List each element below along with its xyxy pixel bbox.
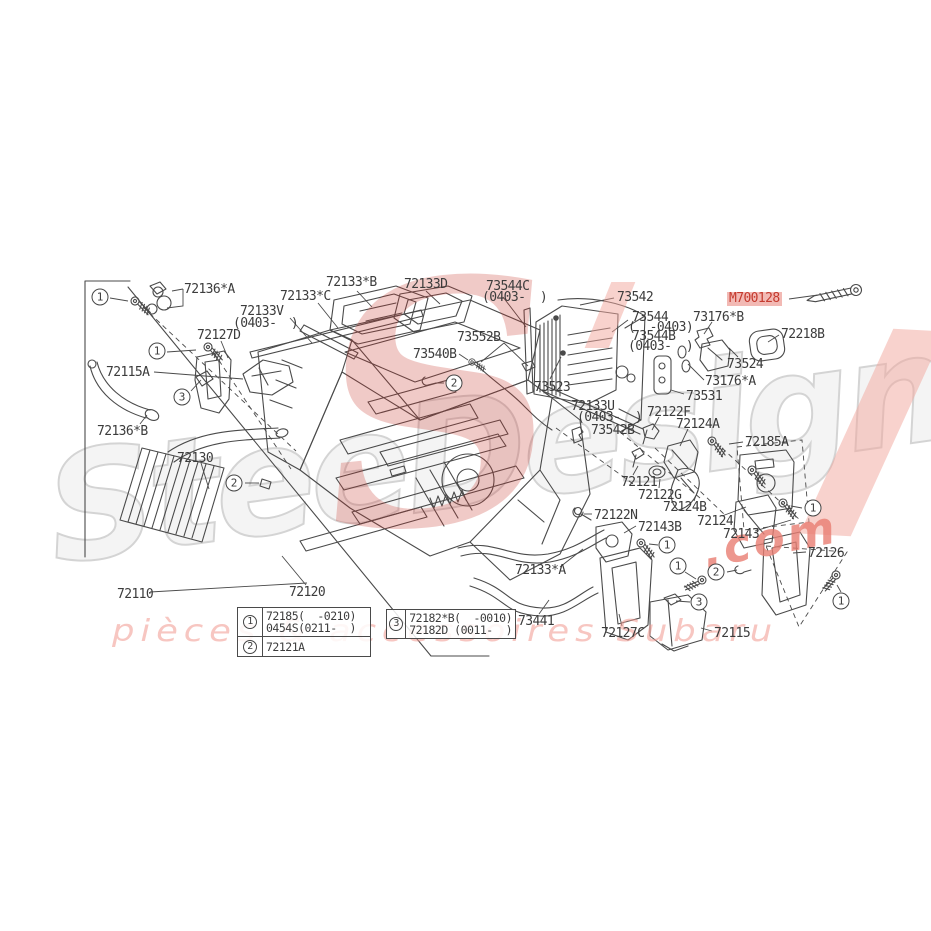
watermark-wedge [585, 282, 636, 348]
legend-part-cell: 72121A [263, 637, 308, 656]
legend-part-number: 72182D (0011- ) [409, 624, 512, 636]
part-label-73544b: 73544B [632, 330, 675, 344]
part-label-72124: 72124 [697, 515, 733, 529]
diagram-line-art [0, 0, 931, 931]
callout-2: 2 [226, 475, 243, 492]
part-label-0403: (0403- ) [482, 291, 547, 305]
part-label-73544: 73544 [632, 311, 668, 325]
legend-part-number: 0454S(0211- ) [266, 622, 356, 634]
part-label-72133a: 72133*A [515, 564, 566, 578]
part-label-72122f: 72122F [647, 406, 690, 420]
part-label-72124b: 72124B [663, 501, 706, 515]
watermark-brand: SteeDesign [38, 313, 931, 587]
part-label-72121: 72121 [621, 476, 657, 490]
legend-row: 3 72182*B( -0010) 72182D (0011- ) [387, 610, 515, 638]
legend-table-right: 3 72182*B( -0010) 72182D (0011- ) [386, 609, 516, 639]
part-label-72120: 72120 [289, 586, 325, 600]
callout-2: 2 [708, 564, 725, 581]
legend-row: 1 72185( -0210) 0454S(0211- ) [238, 608, 370, 636]
watermark-tagline: pièces & accessoires Subaru [112, 617, 778, 647]
part-label-72133v: 72133V [240, 305, 283, 319]
callout-3: 3 [174, 389, 191, 406]
legend-part-number: 72182*B( -0010) [409, 612, 512, 624]
callout-1: 1 [805, 500, 822, 517]
part-label-72127d: 72127D [197, 329, 240, 343]
part-label-72115: 72115 [714, 627, 750, 641]
part-label-73441: 73441 [518, 615, 554, 629]
part-label-72127c: 72127C [601, 627, 644, 641]
part-label-72218b: 72218B [781, 328, 824, 342]
part-label-72136b: 72136*B [97, 425, 148, 439]
part-label-72136a: 72136*A [184, 283, 235, 297]
part-label-73176a: 73176*A [705, 375, 756, 389]
callout-1: 1 [670, 558, 687, 575]
part-label-0403: (0403- ) [628, 340, 693, 354]
callout-1: 1 [659, 537, 676, 554]
part-label-73540b: 73540B [413, 348, 456, 362]
callout-1: 1 [149, 343, 166, 360]
watermark-wedge [800, 329, 931, 536]
part-label-72133c: 72133*C [280, 290, 331, 304]
legend-part-cell: 72185( -0210) 0454S(0211- ) [263, 608, 359, 636]
part-label-72115a: 72115A [106, 366, 149, 380]
watermark-domain-suffix: .com [699, 503, 842, 574]
part-label-0403: ( -0403) [628, 321, 693, 335]
part-label-72185a: 72185A [745, 436, 788, 450]
callout-1: 1 [92, 289, 109, 306]
part-label-0403: (0403- ) [233, 317, 298, 331]
part-label-m700128: M700128 [727, 292, 782, 306]
part-label-73552b: 73552B [457, 331, 500, 345]
part-label-72110: 72110 [117, 588, 153, 602]
part-label-72126: 72126 [808, 547, 844, 561]
part-label-73542b: 73542B [591, 424, 634, 438]
legend-part-number: 72185( -0210) [266, 610, 356, 622]
callout-1-badge: 1 [243, 615, 257, 629]
part-label-73544c: 73544C [486, 280, 529, 294]
part-label-0403: (0403- ) [577, 411, 642, 425]
callout-1: 1 [833, 593, 850, 610]
callout-2: 2 [446, 375, 463, 392]
part-label-72133b: 72133*B [326, 276, 377, 290]
part-label-72133d: 72133D [404, 278, 447, 292]
part-label-73523: 73523 [534, 381, 570, 395]
legend-badge-cell: 3 [387, 610, 406, 638]
part-label-73542: 73542 [617, 291, 653, 305]
part-label-72143b: 72143B [638, 521, 681, 535]
part-label-72133u: 72133U [571, 400, 614, 414]
part-label-72130: 72130 [177, 452, 213, 466]
legend-part-cell: 72182*B( -0010) 72182D (0011- ) [406, 610, 515, 638]
legend-table-left: 1 72185( -0210) 0454S(0211- ) 2 72121A [237, 607, 371, 657]
part-label-72122g: 72122G [638, 489, 681, 503]
part-label-72124a: 72124A [676, 418, 719, 432]
part-label-72122n: 72122N [594, 509, 637, 523]
part-label-73176b: 73176*B [693, 311, 744, 325]
part-label-73524: 73524 [727, 358, 763, 372]
parts-diagram-page: SteeDesign [0, 0, 931, 931]
part-label-73531: 73531 [686, 390, 722, 404]
callout-2-badge: 2 [243, 640, 257, 654]
part-label-72143: 72143 [723, 528, 759, 542]
legend-row: 2 72121A [238, 636, 370, 656]
legend-badge-cell: 2 [238, 637, 263, 656]
part-labels-layer: 72136*A72133*C72133*B72133D72133V(0403- … [0, 0, 931, 931]
watermark-logo-s: S [303, 228, 575, 581]
callout-3-badge: 3 [389, 617, 403, 631]
callout-3: 3 [691, 594, 708, 611]
legend-part-number: 72121A [266, 641, 305, 653]
legend-badge-cell: 1 [238, 608, 263, 636]
